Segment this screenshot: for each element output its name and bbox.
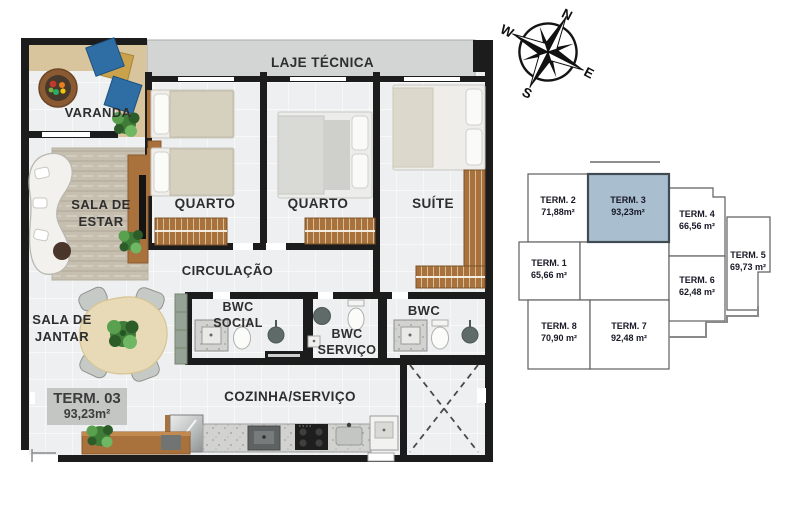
- table-plant-icon: [107, 320, 139, 349]
- floor-plan-page: VARANDA LAJE TÉCNICA SALA DE ESTAR QUART…: [0, 0, 797, 525]
- wardrobe-icon: [155, 218, 227, 245]
- laundry-tank-icon: [368, 416, 398, 461]
- keyplan-label-term8: TERM. 870,90 m²: [529, 320, 589, 344]
- room-label-quarto-2: QUARTO: [271, 195, 365, 213]
- room-label-bwc-servico: BWC SERVIÇO: [305, 326, 389, 359]
- compass-e: E: [582, 64, 597, 81]
- room-label-cozinha-servico: COZINHA/SERVIÇO: [195, 388, 385, 406]
- room-label-laje-tecnica: LAJE TÉCNICA: [230, 54, 415, 72]
- keyplan-top-mark: [590, 161, 660, 163]
- room-label-bwc-social: BWC SOCIAL: [196, 299, 280, 332]
- room-label-circulacao: CIRCULAÇÃO: [165, 263, 290, 280]
- keyplan-cell-core: [580, 242, 669, 300]
- fruit-bowl-table-icon: [39, 69, 77, 107]
- compass-n: N: [559, 6, 574, 24]
- key-plan: TERM. 271,88m² TERM. 393,23m² TERM. 466,…: [518, 166, 780, 378]
- toilet-icon: [432, 320, 449, 349]
- keyplan-label-term5: TERM. 569,73 m²: [718, 249, 778, 273]
- keyplan-label-term3: TERM. 393,23m²: [598, 194, 658, 218]
- room-label-quarto-1: QUARTO: [158, 195, 252, 213]
- living-plant-icon: [119, 230, 144, 254]
- compass-rose-icon: N E S W: [498, 0, 604, 106]
- keyplan-label-term4: TERM. 466,56 m²: [667, 208, 727, 232]
- room-label-varanda: VARANDA: [52, 105, 144, 122]
- compass-s: S: [520, 84, 535, 101]
- shelf-icon: [175, 294, 187, 364]
- shower-icon: [313, 308, 331, 325]
- pouf-icon: [53, 242, 71, 260]
- sideboard-plant-icon: [87, 425, 114, 448]
- keyplan-label-term6: TERM. 662,48 m²: [667, 274, 727, 298]
- bed-icon: [147, 148, 234, 196]
- unit-badge-number: TERM. 03: [47, 391, 127, 408]
- cooktop-icon: [295, 424, 328, 450]
- room-label-sala-de-jantar: SALA DE JANTAR: [20, 312, 104, 346]
- bed-icon: [147, 90, 234, 138]
- room-label-suite: SUÍTE: [386, 195, 480, 213]
- keyplan-label-term7: TERM. 792,48 m²: [599, 320, 659, 344]
- wardrobe-icon: [305, 218, 375, 244]
- room-label-sala-de-estar: SALA DE ESTAR: [58, 197, 144, 231]
- unit-badge: TERM. 03 93,23m²: [47, 388, 127, 425]
- keyplan-label-term2: TERM. 271,88m²: [528, 194, 588, 218]
- room-label-bwc-suite: BWC: [382, 303, 466, 320]
- oven-icon: [248, 426, 280, 450]
- compass-w: W: [498, 22, 516, 41]
- keyplan-label-term1: TERM. 165,66 m²: [519, 257, 579, 281]
- unit-badge-area: 93,23m²: [47, 408, 127, 422]
- bed-icon: [393, 85, 485, 170]
- bed-icon: [278, 112, 372, 198]
